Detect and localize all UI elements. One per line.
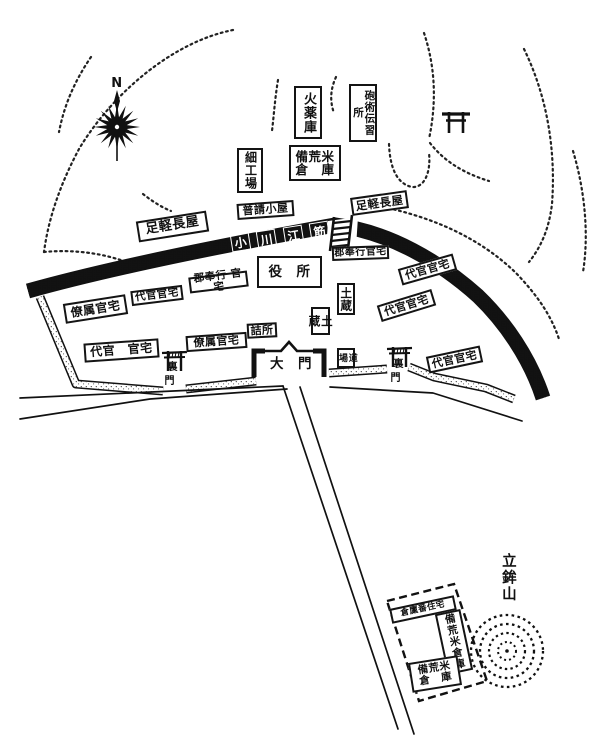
- mountain-name-label: 立鉾山: [495, 551, 519, 605]
- compass-north-label: N: [109, 76, 125, 92]
- rear-gate-left-label-bottom: 門: [163, 373, 176, 385]
- river-char-1: 小: [230, 232, 252, 253]
- building-label-dojo: 道場: [337, 348, 355, 368]
- building-label-artillery-school: 砲術伝習所: [349, 84, 377, 142]
- rear-gate-left-label-top: 裏: [166, 359, 179, 371]
- building-label-guard-station: 詰所: [247, 322, 278, 339]
- compass-rose-icon: [94, 90, 140, 161]
- rear-gate-right-label-top: 裏: [392, 356, 405, 368]
- main-gate-label: 大 門: [263, 356, 319, 372]
- building-label-rice-storehouse-north: 備荒米 倉 庫: [289, 145, 341, 181]
- building-label-government-office: 役 所: [257, 256, 322, 288]
- building-label-gunpowder-store: 火薬庫: [294, 86, 322, 139]
- tatehoko-hill-icon: [471, 615, 543, 687]
- building-label-storehouse-lower: 土蔵: [311, 307, 330, 335]
- rear-gate-right-label-bottom: 門: [389, 370, 402, 382]
- building-label-storehouse-upper: 土蔵: [337, 283, 355, 315]
- building-label-craft-workshop: 細工場: [237, 148, 263, 193]
- building-label-district-magistrate-west: 郡奉行 官宅: [188, 270, 249, 293]
- building-label-district-magistrate-east: 郡奉行官宅: [332, 245, 389, 261]
- river-char-4: 筋: [309, 221, 331, 242]
- torii-icon: [442, 112, 470, 133]
- historic-site-map: N 火薬庫 砲術伝習所 細工場 備荒米 倉 庫 足軽長屋 普請小屋 足軽長屋 郡…: [0, 0, 600, 741]
- river-char-2: 川: [256, 229, 278, 250]
- river-char-3: 江: [283, 225, 305, 246]
- hill-contour-lines: [44, 30, 586, 339]
